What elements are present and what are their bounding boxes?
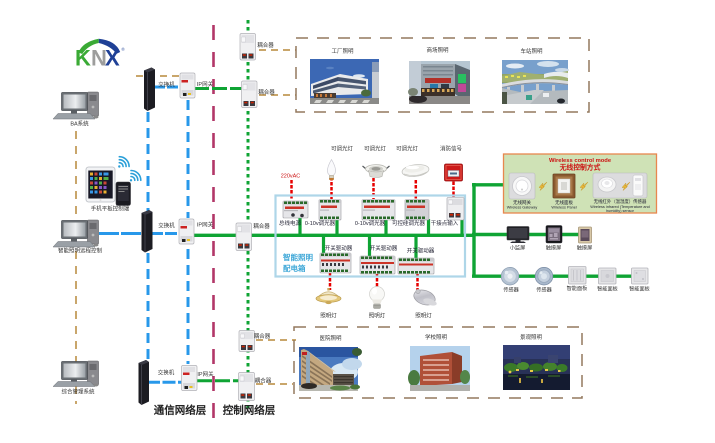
- svg-text:220vAC: 220vAC: [281, 174, 301, 180]
- svg-text:交换机: 交换机: [158, 369, 175, 377]
- svg-text:商场照明: 商场照明: [426, 46, 449, 54]
- svg-text:可控硅调光器: 可控硅调光器: [392, 219, 426, 227]
- svg-text:车站照明: 车站照明: [520, 47, 543, 55]
- svg-text:0-10v调光器: 0-10v调光器: [305, 219, 336, 227]
- svg-text:耦合器: 耦合器: [253, 222, 270, 230]
- svg-text:照明灯: 照明灯: [320, 312, 337, 320]
- svg-text:传感器: 传感器: [536, 286, 552, 294]
- svg-text:触摸屏: 触摸屏: [546, 244, 562, 252]
- svg-text:开关驱动器: 开关驱动器: [370, 244, 398, 252]
- svg-text:传感器: 传感器: [503, 286, 519, 294]
- svg-text:医院照明: 医院照明: [319, 334, 342, 342]
- svg-text:耦合器: 耦合器: [258, 88, 275, 96]
- svg-text:Wireless control mode: Wireless control mode: [549, 158, 612, 164]
- svg-text:0-10v调光器: 0-10v调光器: [355, 219, 386, 227]
- svg-text:智能面板: 智能面板: [597, 285, 619, 293]
- svg-text:景观照明: 景观照明: [520, 334, 543, 341]
- svg-text:BA系统: BA系统: [70, 120, 89, 128]
- svg-text:总线电源: 总线电源: [279, 219, 302, 227]
- svg-text:通信网络层: 通信网络层: [154, 404, 207, 417]
- svg-text:干接点输入: 干接点输入: [431, 219, 459, 227]
- svg-text:手机平板控制端: 手机平板控制端: [91, 205, 130, 213]
- svg-text:触摸屏: 触摸屏: [577, 244, 593, 252]
- svg-text:IP网关: IP网关: [197, 80, 214, 88]
- svg-text:IP网关: IP网关: [197, 221, 214, 229]
- svg-text:开关驱动器: 开关驱动器: [407, 247, 435, 255]
- svg-text:智能面板: 智能面板: [629, 285, 651, 293]
- svg-text:控制网络层: 控制网络层: [223, 404, 276, 417]
- svg-text:交换机: 交换机: [158, 222, 175, 230]
- svg-text:humidity) sensor: humidity) sensor: [606, 209, 635, 213]
- svg-text:IP网关: IP网关: [197, 370, 214, 378]
- svg-text:开关驱动器: 开关驱动器: [325, 244, 353, 252]
- svg-text:X: X: [105, 46, 120, 71]
- svg-text:综合管理系统: 综合管理系统: [61, 388, 95, 396]
- svg-text:智能照明远程控制: 智能照明远程控制: [58, 247, 103, 255]
- svg-text:Wireless Gateway: Wireless Gateway: [507, 206, 538, 210]
- svg-text:智能面板: 智能面板: [567, 284, 589, 292]
- svg-text:照明灯: 照明灯: [369, 312, 386, 320]
- svg-text:无线控制方式: 无线控制方式: [559, 163, 601, 172]
- svg-text:学校照明: 学校照明: [425, 333, 448, 341]
- svg-text:耦合器: 耦合器: [257, 41, 274, 49]
- svg-text:消防信号: 消防信号: [440, 145, 463, 153]
- svg-text:小监屏: 小监屏: [510, 244, 526, 252]
- svg-text:可调光灯: 可调光灯: [331, 145, 354, 153]
- svg-text:K: K: [75, 46, 91, 71]
- svg-text:智能照明: 智能照明: [283, 252, 313, 262]
- svg-text:可调光灯: 可调光灯: [396, 145, 419, 153]
- svg-text:交换机: 交换机: [158, 81, 175, 89]
- svg-text:工厂照明: 工厂照明: [331, 48, 354, 55]
- svg-text:照明灯: 照明灯: [415, 312, 432, 320]
- svg-text:可调光灯: 可调光灯: [364, 145, 387, 153]
- svg-text:Wireless Panel: Wireless Panel: [551, 206, 576, 210]
- svg-text:耦合器: 耦合器: [255, 377, 272, 385]
- svg-text:耦合器: 耦合器: [254, 332, 271, 340]
- svg-text:配电箱: 配电箱: [283, 263, 306, 273]
